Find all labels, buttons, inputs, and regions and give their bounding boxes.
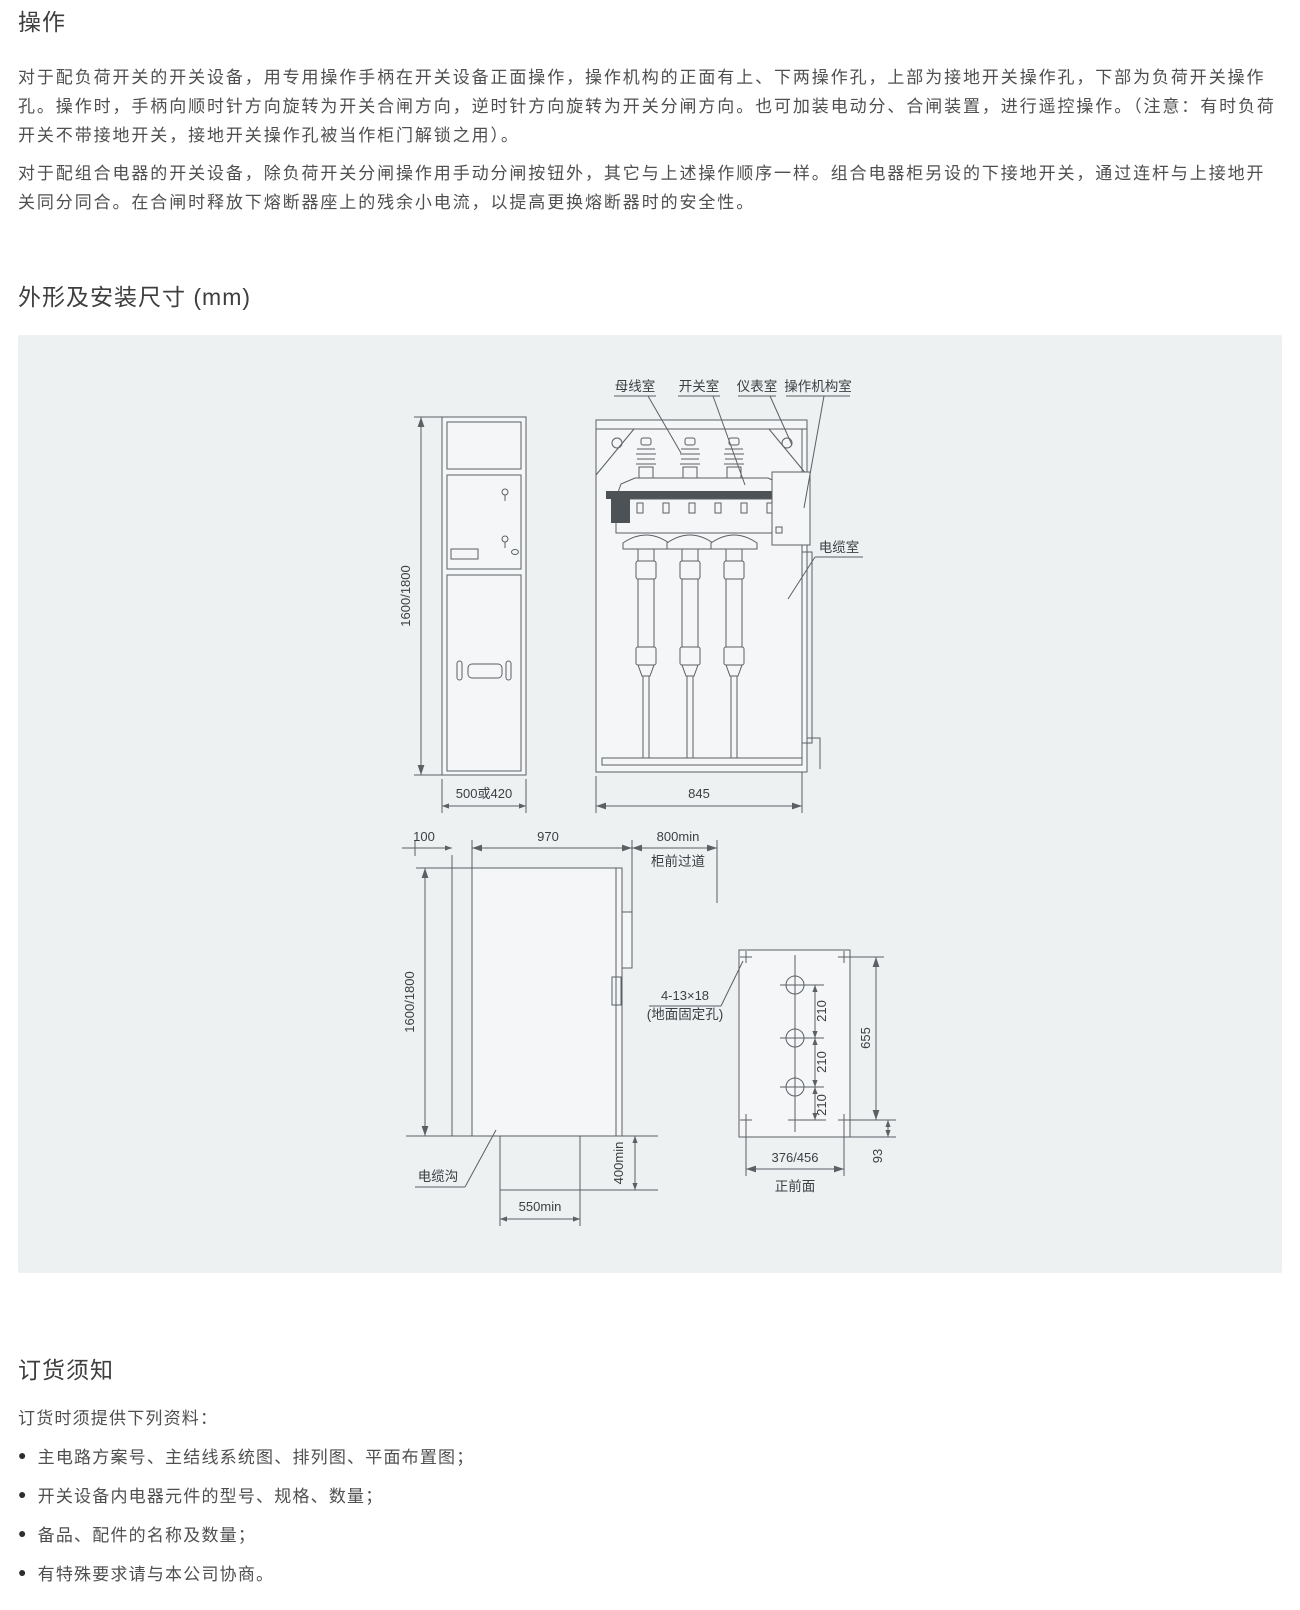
label-switch-room: 开关室 [679, 378, 720, 394]
mechanism-box [772, 472, 810, 545]
dim-550min: 550min [519, 1199, 562, 1214]
dim-376-456: 376/456 [772, 1150, 819, 1165]
list-item-text: 备品、配件的名称及数量； [38, 1521, 256, 1546]
list-item-text: 开关设备内电器元件的型号、规格、数量； [38, 1482, 384, 1507]
list-item: ● 有特殊要求请与本公司协商。 [18, 1561, 1282, 1583]
dim-100: 100 [413, 829, 435, 844]
dimensions-diagram-panel: 1600/1800 500或420 [18, 335, 1282, 1273]
list-item-text: 有特殊要求请与本公司协商。 [38, 1560, 275, 1585]
label-busbar-room: 母线室 [615, 378, 656, 394]
operation-paragraph-1: 对于配负荷开关的开关设备，用专用操作手柄在开关设备正面操作，操作机构的正面有上、… [18, 63, 1282, 150]
dim-93: 93 [870, 1149, 885, 1163]
dim-655: 655 [858, 1027, 873, 1049]
ordering-title: 订货须知 [18, 1353, 1282, 1387]
section-view: 100 970 800min 柜前过道 1600/1800 [402, 829, 717, 1226]
dim-front-width: 500或420 [456, 786, 512, 801]
label-cable-trench: 电缆沟 [418, 1169, 459, 1184]
list-item: ● 开关设备内电器元件的型号、规格、数量； [18, 1483, 1282, 1505]
dim-side-width: 845 [688, 786, 710, 801]
plan-view: 210 210 210 655 93 376/456 正前面 4-13× [647, 950, 896, 1194]
label-instrument-room: 仪表室 [737, 378, 778, 394]
ordering-list: ● 主电路方案号、主结线系统图、排列图、平面布置图； ● 开关设备内电器元件的型… [18, 1444, 1282, 1583]
dim-800min: 800min [657, 829, 700, 844]
dim-970: 970 [537, 829, 559, 844]
bullet-icon: ● [18, 1565, 28, 1579]
side-view: 母线室 开关室 仪表室 操作机构室 电缆室 845 [596, 378, 863, 813]
dim-210-3: 210 [814, 1094, 829, 1116]
operation-paragraph-2: 对于配组合电器的开关设备，除负荷开关分闸操作用手动分闸按钮外，其它与上述操作顺序… [18, 159, 1282, 217]
label-fixing-holes: 4-13×18 [661, 988, 709, 1003]
label-front-face: 正前面 [775, 1178, 816, 1194]
bullet-icon: ● [18, 1448, 28, 1462]
dim-front-height: 1600/1800 [398, 565, 413, 626]
label-mechanism-room: 操作机构室 [784, 378, 852, 394]
dim-210-2: 210 [814, 1051, 829, 1073]
ordering-intro: 订货时须提供下列资料： [18, 1404, 1282, 1429]
label-cable-room: 电缆室 [819, 539, 860, 555]
bullet-icon: ● [18, 1526, 28, 1540]
label-front-aisle: 柜前过道 [651, 853, 705, 869]
dim-section-height: 1600/1800 [402, 971, 417, 1032]
front-view: 1600/1800 500或420 [398, 417, 526, 813]
dimensions-diagram: 1600/1800 500或420 [18, 335, 1282, 1273]
page: 操作 对于配负荷开关的开关设备，用专用操作手柄在开关设备正面操作，操作机构的正面… [0, 0, 1300, 1610]
list-item: ● 备品、配件的名称及数量； [18, 1522, 1282, 1544]
dim-210-1: 210 [814, 1000, 829, 1022]
list-item-text: 主电路方案号、主结线系统图、排列图、平面布置图； [38, 1443, 475, 1468]
bullet-icon: ● [18, 1487, 28, 1501]
dimensions-title: 外形及安装尺寸 (mm) [18, 280, 1282, 314]
list-item: ● 主电路方案号、主结线系统图、排列图、平面布置图； [18, 1444, 1282, 1466]
dim-400min: 400min [611, 1142, 626, 1185]
label-fixing-holes-note: (地面固定孔) [647, 1007, 724, 1022]
operation-title: 操作 [18, 0, 1282, 39]
